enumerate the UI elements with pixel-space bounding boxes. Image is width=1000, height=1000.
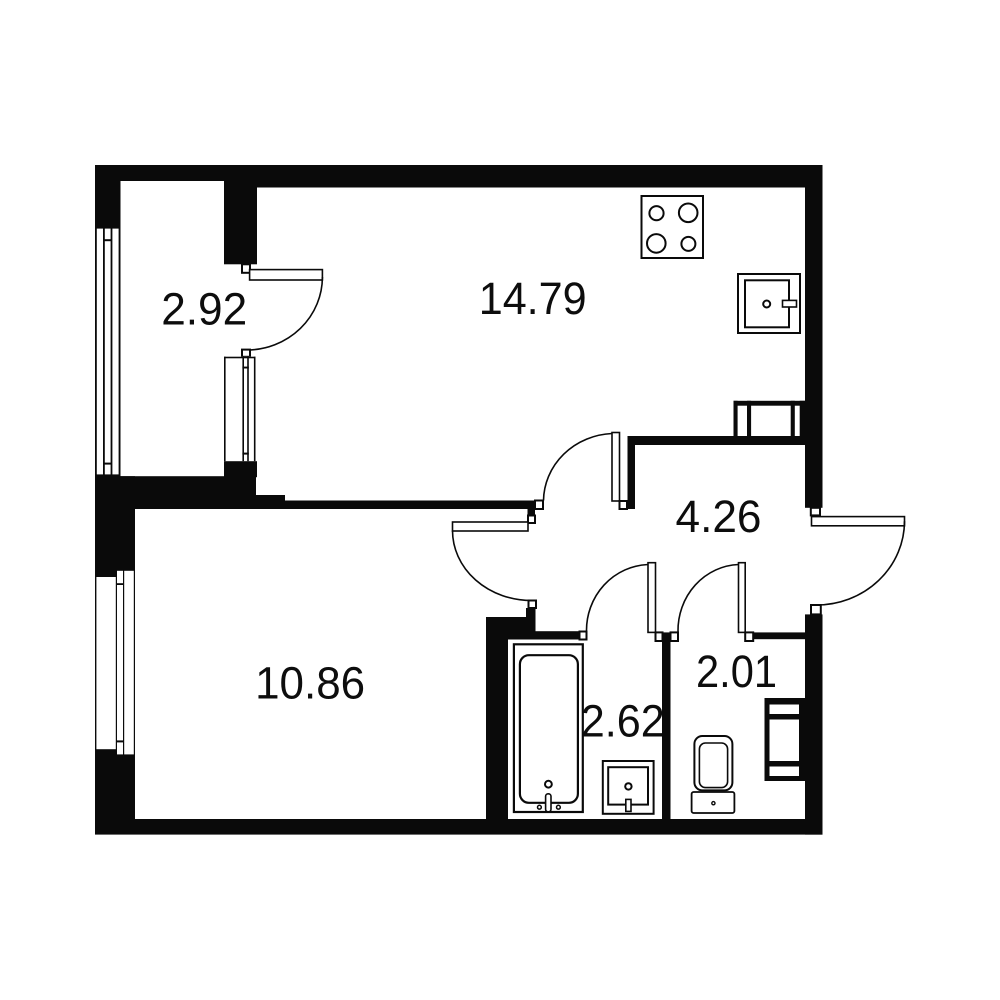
svg-text:2.92: 2.92	[161, 284, 247, 335]
svg-text:10.86: 10.86	[255, 658, 365, 709]
svg-text:14.79: 14.79	[479, 273, 587, 324]
svg-text:2.01: 2.01	[696, 646, 777, 697]
svg-text:4.26: 4.26	[676, 491, 762, 542]
svg-text:2.62: 2.62	[581, 696, 665, 747]
